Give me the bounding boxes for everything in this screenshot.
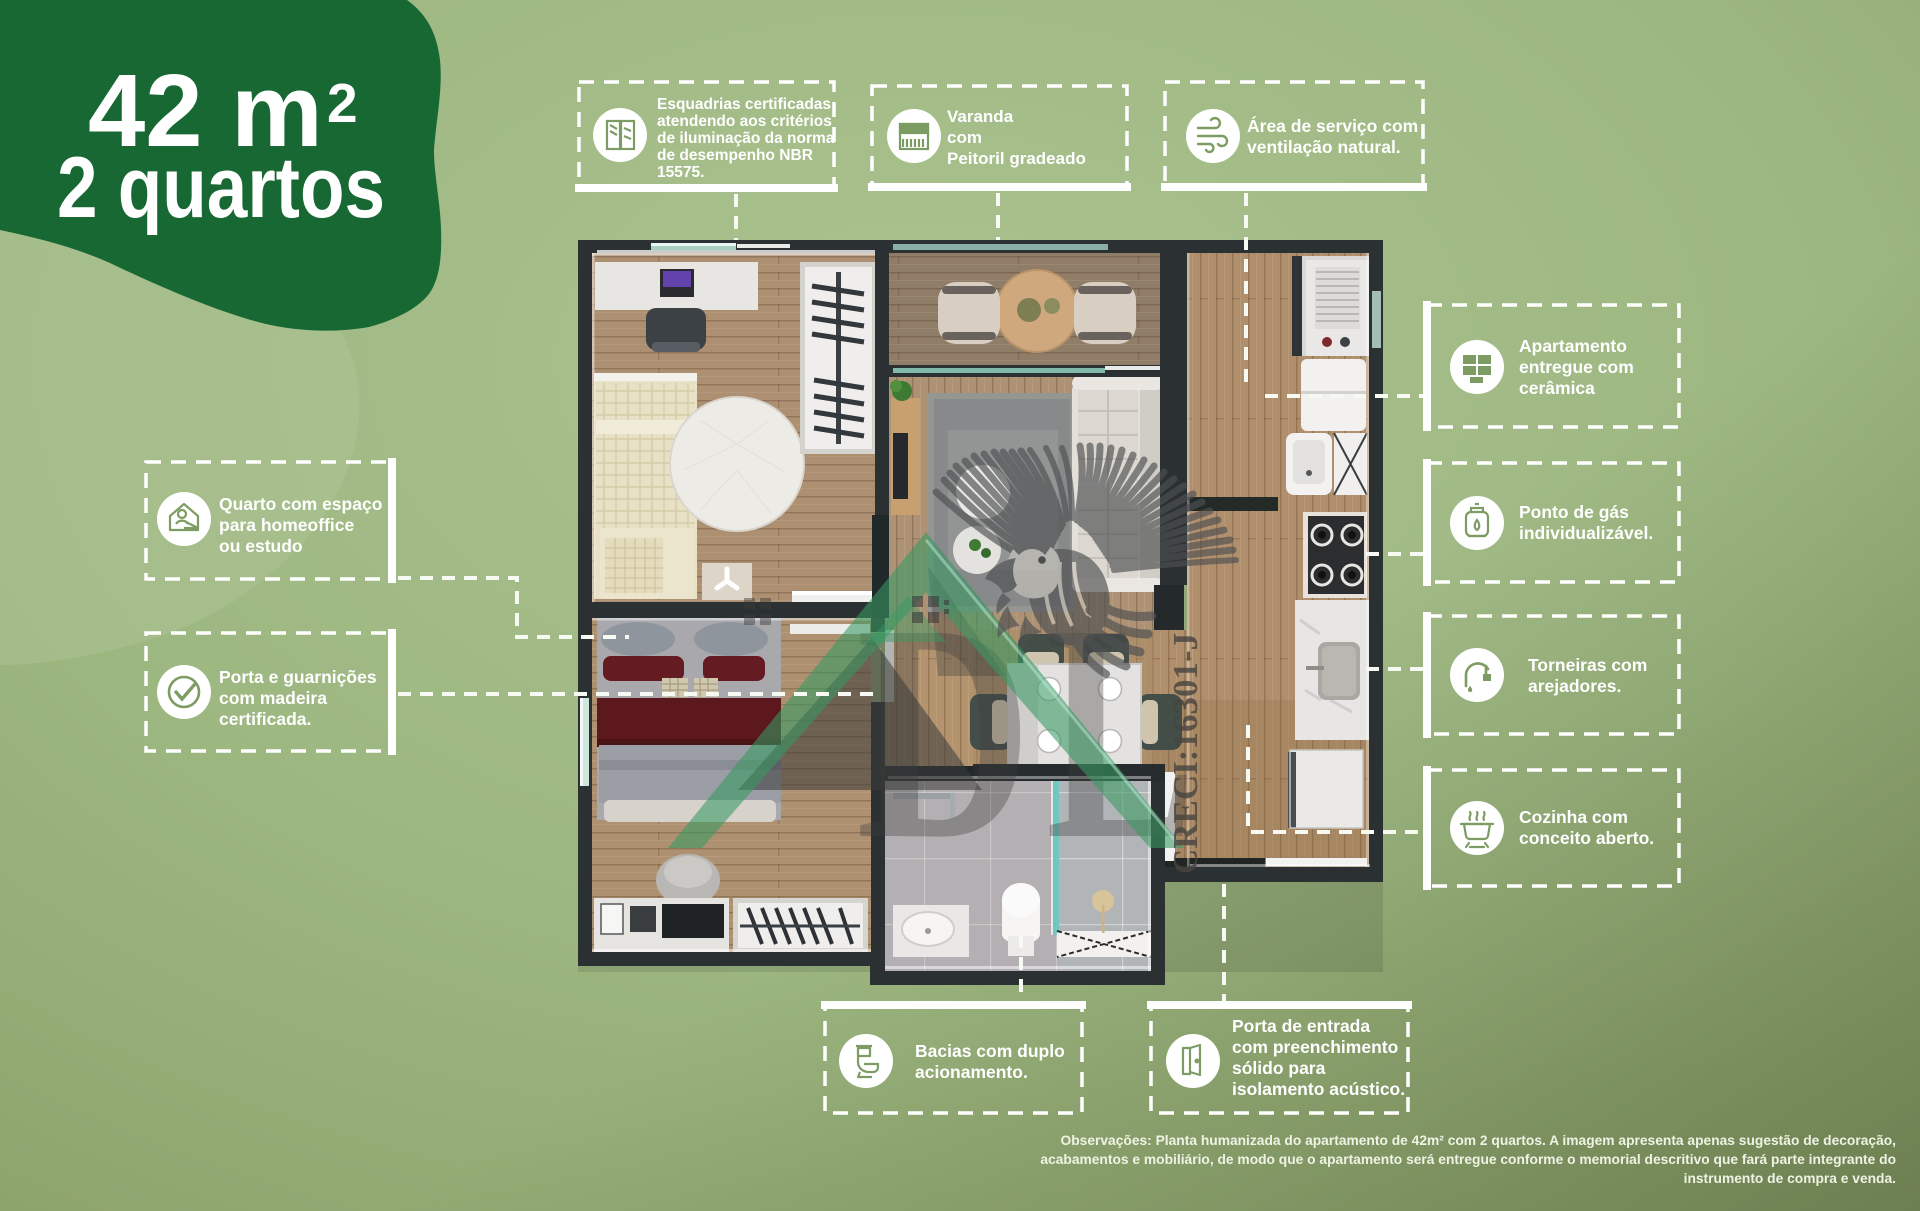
svg-text:instrumento de compra e venda.: instrumento de compra e venda. (1684, 1171, 1896, 1186)
svg-text:ventilação natural.: ventilação natural. (1247, 137, 1401, 157)
svg-text:Peitoril gradeado: Peitoril gradeado (947, 149, 1086, 168)
svg-text:de desempenho NBR: de desempenho NBR (657, 147, 813, 164)
svg-text:individualizável.: individualizável. (1519, 523, 1653, 543)
svg-text:para homeoffice: para homeoffice (219, 515, 354, 535)
svg-text:arejadores.: arejadores. (1528, 676, 1621, 696)
svg-text:15575.: 15575. (657, 164, 704, 181)
svg-text:Cozinha com: Cozinha com (1519, 807, 1628, 827)
svg-text:de iluminação da norma: de iluminação da norma (657, 130, 835, 147)
svg-text:conceito aberto.: conceito aberto. (1519, 828, 1654, 848)
svg-text:isolamento acústico.: isolamento acústico. (1232, 1079, 1405, 1099)
svg-text:Bacias com duplo: Bacias com duplo (915, 1041, 1065, 1061)
svg-text:cerâmica: cerâmica (1519, 378, 1595, 398)
svg-text:sólido para: sólido para (1232, 1058, 1326, 1078)
svg-text:CRECI:16301-J: CRECI:16301-J (1166, 633, 1205, 874)
svg-text:2 quartos: 2 quartos (57, 140, 385, 236)
svg-text:certificada.: certificada. (219, 709, 311, 729)
svg-text:com preenchimento: com preenchimento (1232, 1037, 1398, 1057)
svg-text:atendendo aos critérios: atendendo aos critérios (657, 113, 832, 130)
svg-text:com: com (947, 128, 982, 147)
svg-text:Observações: Planta humanizada: Observações: Planta humanizada do aparta… (1061, 1133, 1897, 1148)
svg-text:Ponto de gás: Ponto de gás (1519, 502, 1629, 522)
svg-text:Torneiras com: Torneiras com (1528, 655, 1647, 675)
svg-text:Apartamento: Apartamento (1519, 336, 1627, 356)
svg-text:entregue com: entregue com (1519, 357, 1634, 377)
svg-text:Porta e guarnições: Porta e guarnições (219, 667, 377, 687)
svg-text:Quarto com espaço: Quarto com espaço (219, 494, 382, 514)
svg-text:com madeira: com madeira (219, 688, 327, 708)
svg-text:acionamento.: acionamento. (915, 1062, 1028, 1082)
svg-text:Porta de entrada: Porta de entrada (1232, 1016, 1370, 1036)
svg-text:acabamentos e mobiliário, de m: acabamentos e mobiliário, de modo que o … (1040, 1152, 1896, 1167)
svg-text:Esquadrias certificadas: Esquadrias certificadas (657, 96, 831, 113)
svg-text:Área de serviço com: Área de serviço com (1247, 115, 1418, 136)
svg-text:ou estudo: ou estudo (219, 536, 303, 556)
svg-text:2: 2 (327, 72, 358, 134)
svg-text:Varanda: Varanda (947, 107, 1014, 126)
